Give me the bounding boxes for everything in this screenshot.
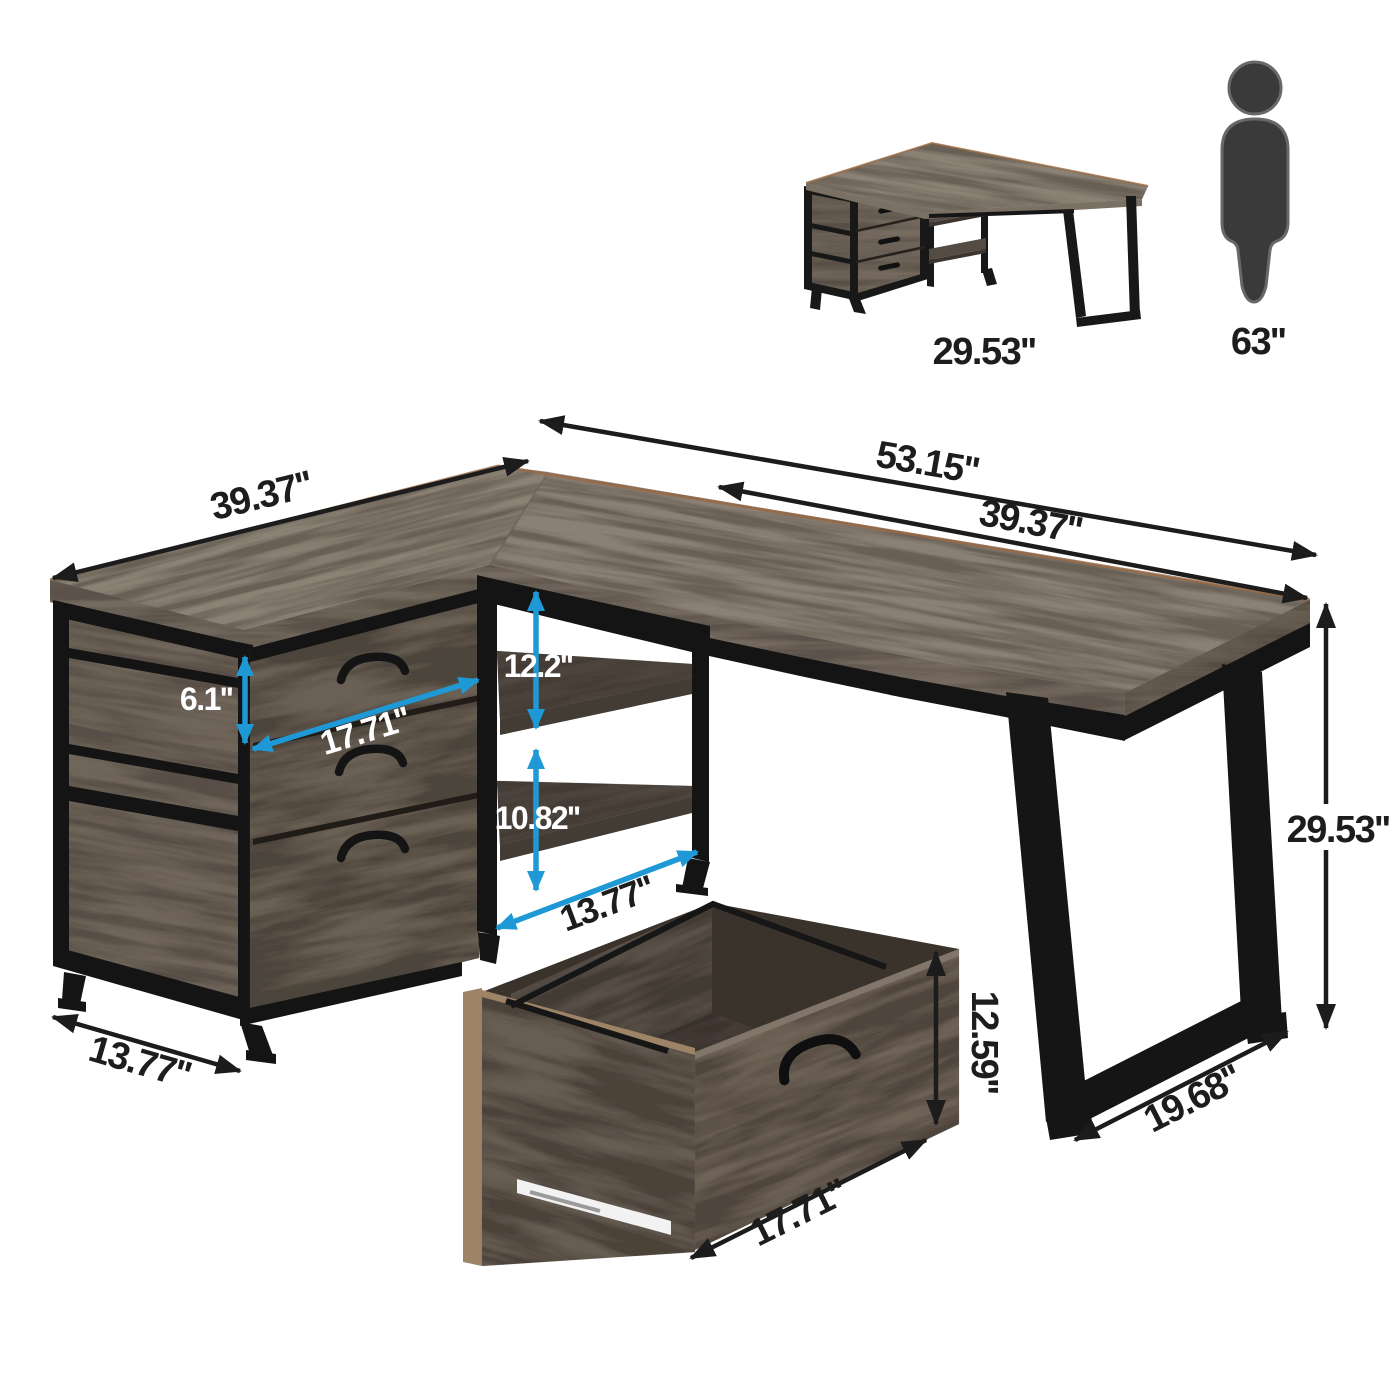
svg-text:6.1'': 6.1'' [180, 681, 232, 717]
svg-text:29.53'': 29.53'' [1287, 809, 1390, 851]
svg-text:12.2'': 12.2'' [504, 648, 573, 684]
svg-text:10.82'': 10.82'' [495, 800, 580, 836]
svg-text:12.59'': 12.59'' [963, 991, 1005, 1094]
svg-text:29.53'': 29.53'' [933, 331, 1036, 373]
svg-text:63'': 63'' [1231, 321, 1286, 363]
